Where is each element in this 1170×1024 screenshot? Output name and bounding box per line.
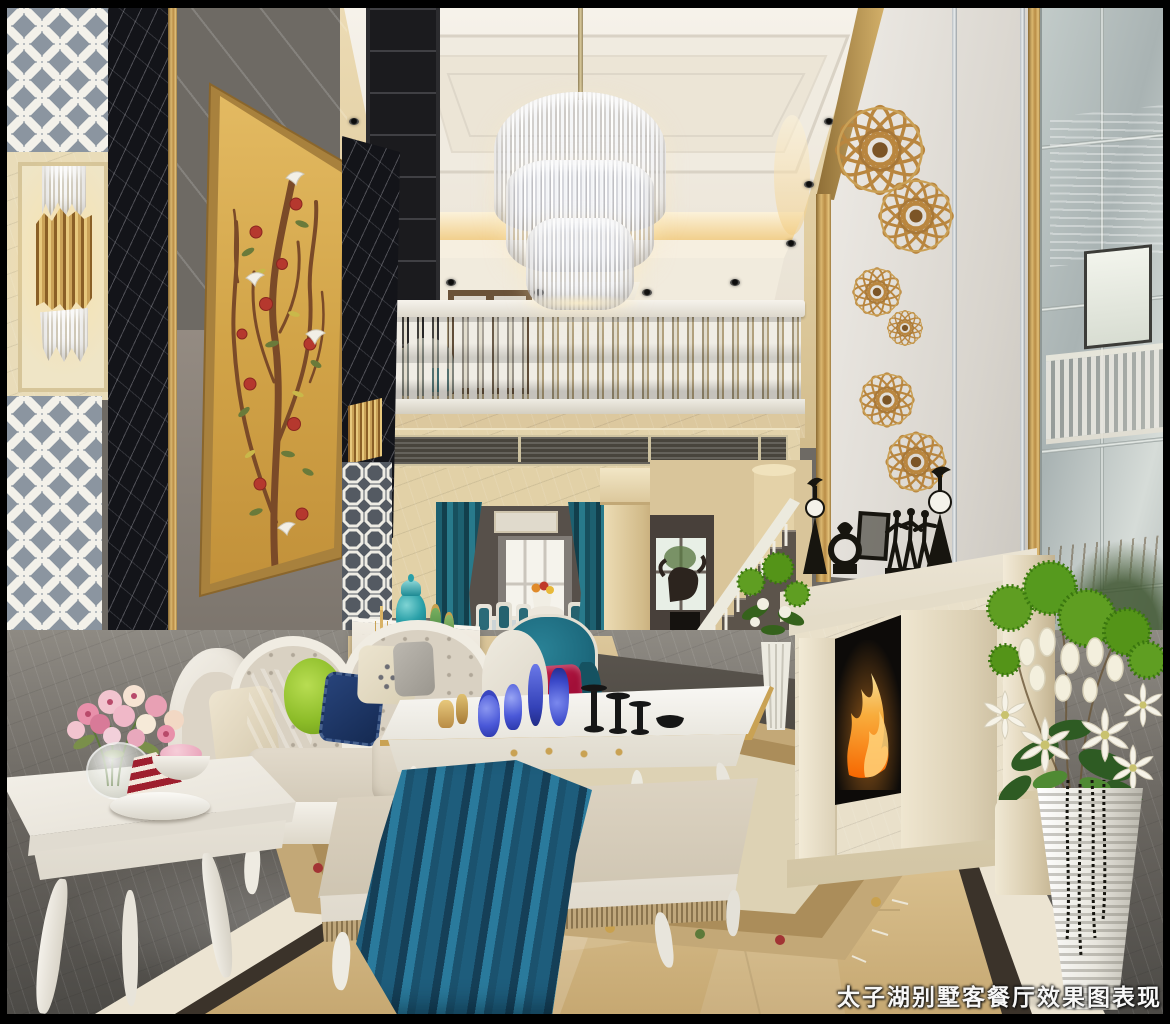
gold-perfume-bottle xyxy=(438,700,454,728)
cake-plate xyxy=(110,792,210,820)
fretwork-screen-top xyxy=(6,8,108,160)
ceiling-spotlight xyxy=(446,279,456,286)
mirror-window-reflection xyxy=(1084,244,1152,349)
chandelier-glow xyxy=(520,294,640,312)
mirror-balustrade-reflection xyxy=(1046,343,1166,445)
apron-gold-carving xyxy=(500,744,640,762)
mini-sconce xyxy=(348,398,382,464)
side-table-leg xyxy=(122,890,138,1006)
side-table-leg xyxy=(32,877,70,1015)
flames xyxy=(841,645,893,785)
urn-lid xyxy=(401,580,421,596)
sconce-crystals-bottom xyxy=(40,308,88,362)
black-candleholders xyxy=(578,680,688,740)
letterbox-left xyxy=(0,0,7,1024)
balustrade-bottom-rail xyxy=(360,399,805,414)
pink-dessert-bowl xyxy=(152,744,210,784)
living-room-rendering: 太子湖别墅客餐厅效果图表现 xyxy=(0,0,1170,1024)
sconce-gold-tubes xyxy=(36,208,92,316)
blue-glass-decanter xyxy=(528,664,543,726)
gold-bird-painting xyxy=(198,82,360,604)
vent-divider xyxy=(758,435,761,462)
letterbox-top xyxy=(0,0,1170,8)
blue-glass-decanter xyxy=(549,668,569,726)
mirror-chandelier-reflection xyxy=(1050,105,1164,267)
gold-perfume-bottle xyxy=(456,694,468,724)
watermark-text: 太子湖别墅客餐厅效果图表现 xyxy=(837,978,1162,1012)
vent-divider xyxy=(518,435,521,462)
side-table-leg xyxy=(199,851,236,979)
tall-vase-flowers xyxy=(975,540,1170,800)
brass-tube-sconce xyxy=(24,160,104,365)
hanging-beads xyxy=(1040,780,1150,980)
blue-glass-bottle xyxy=(504,684,522,730)
chandelier-chain xyxy=(578,8,583,100)
crystal-chandelier xyxy=(470,8,690,318)
urn-knob xyxy=(408,574,414,582)
letterbox-bottom xyxy=(0,1014,1170,1024)
baluster-shading xyxy=(364,317,801,401)
ceiling-spotlight xyxy=(786,240,796,247)
letterbox-right xyxy=(1163,0,1170,1024)
ceiling-spotlight xyxy=(730,279,740,286)
sconce-crystals-top xyxy=(42,166,86,218)
vent-divider xyxy=(648,435,651,462)
blue-glass-bottle xyxy=(478,690,500,737)
bowl xyxy=(152,756,210,780)
